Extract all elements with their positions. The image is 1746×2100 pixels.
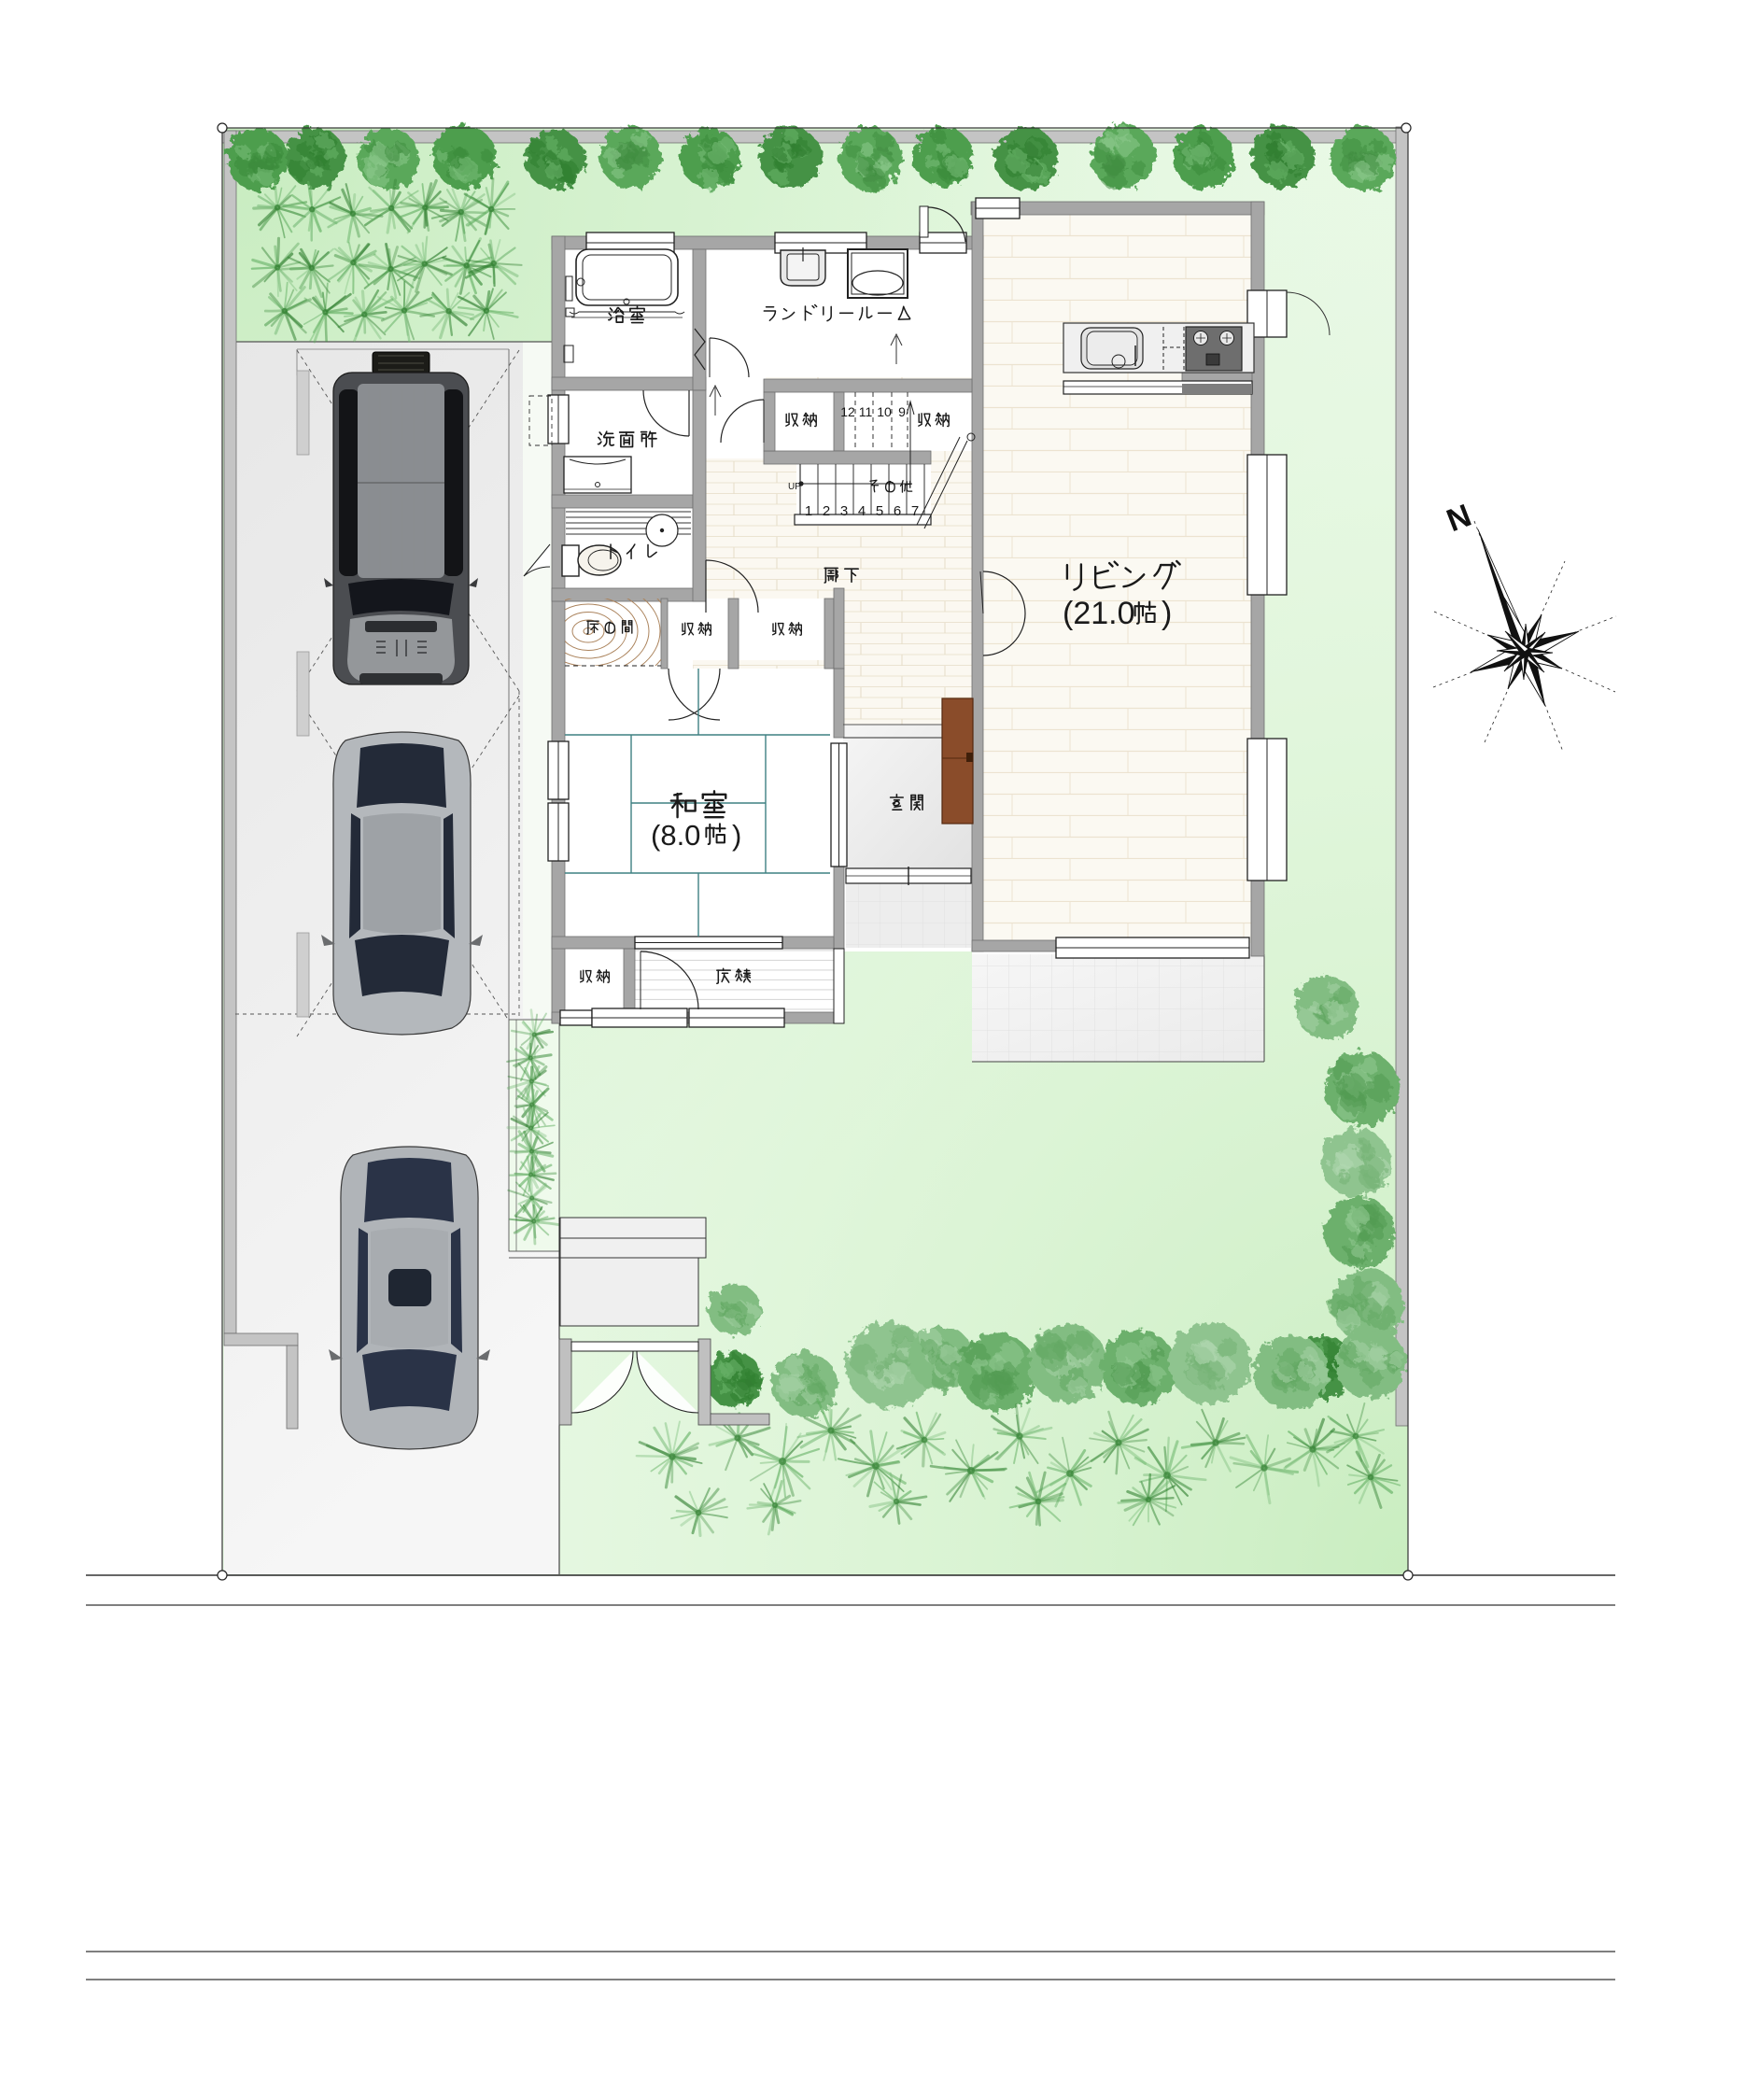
svg-text:10: 10 (877, 404, 892, 419)
svg-text:3: 3 (840, 503, 848, 519)
svg-text:): ) (1162, 596, 1172, 631)
svg-text:6: 6 (894, 503, 901, 519)
svg-text:(21.0: (21.0 (1063, 596, 1135, 631)
svg-text:): ) (732, 819, 741, 852)
svg-text:11: 11 (859, 404, 873, 419)
svg-text:4: 4 (858, 503, 866, 519)
svg-text:UP: UP (788, 482, 801, 492)
svg-text:5: 5 (876, 503, 883, 519)
svg-text:(8.0: (8.0 (651, 819, 700, 852)
svg-text:7: 7 (911, 503, 919, 519)
svg-text:1: 1 (805, 503, 812, 519)
svg-text:12: 12 (840, 404, 855, 419)
svg-text:2: 2 (823, 503, 830, 519)
svg-text:9: 9 (898, 404, 906, 419)
